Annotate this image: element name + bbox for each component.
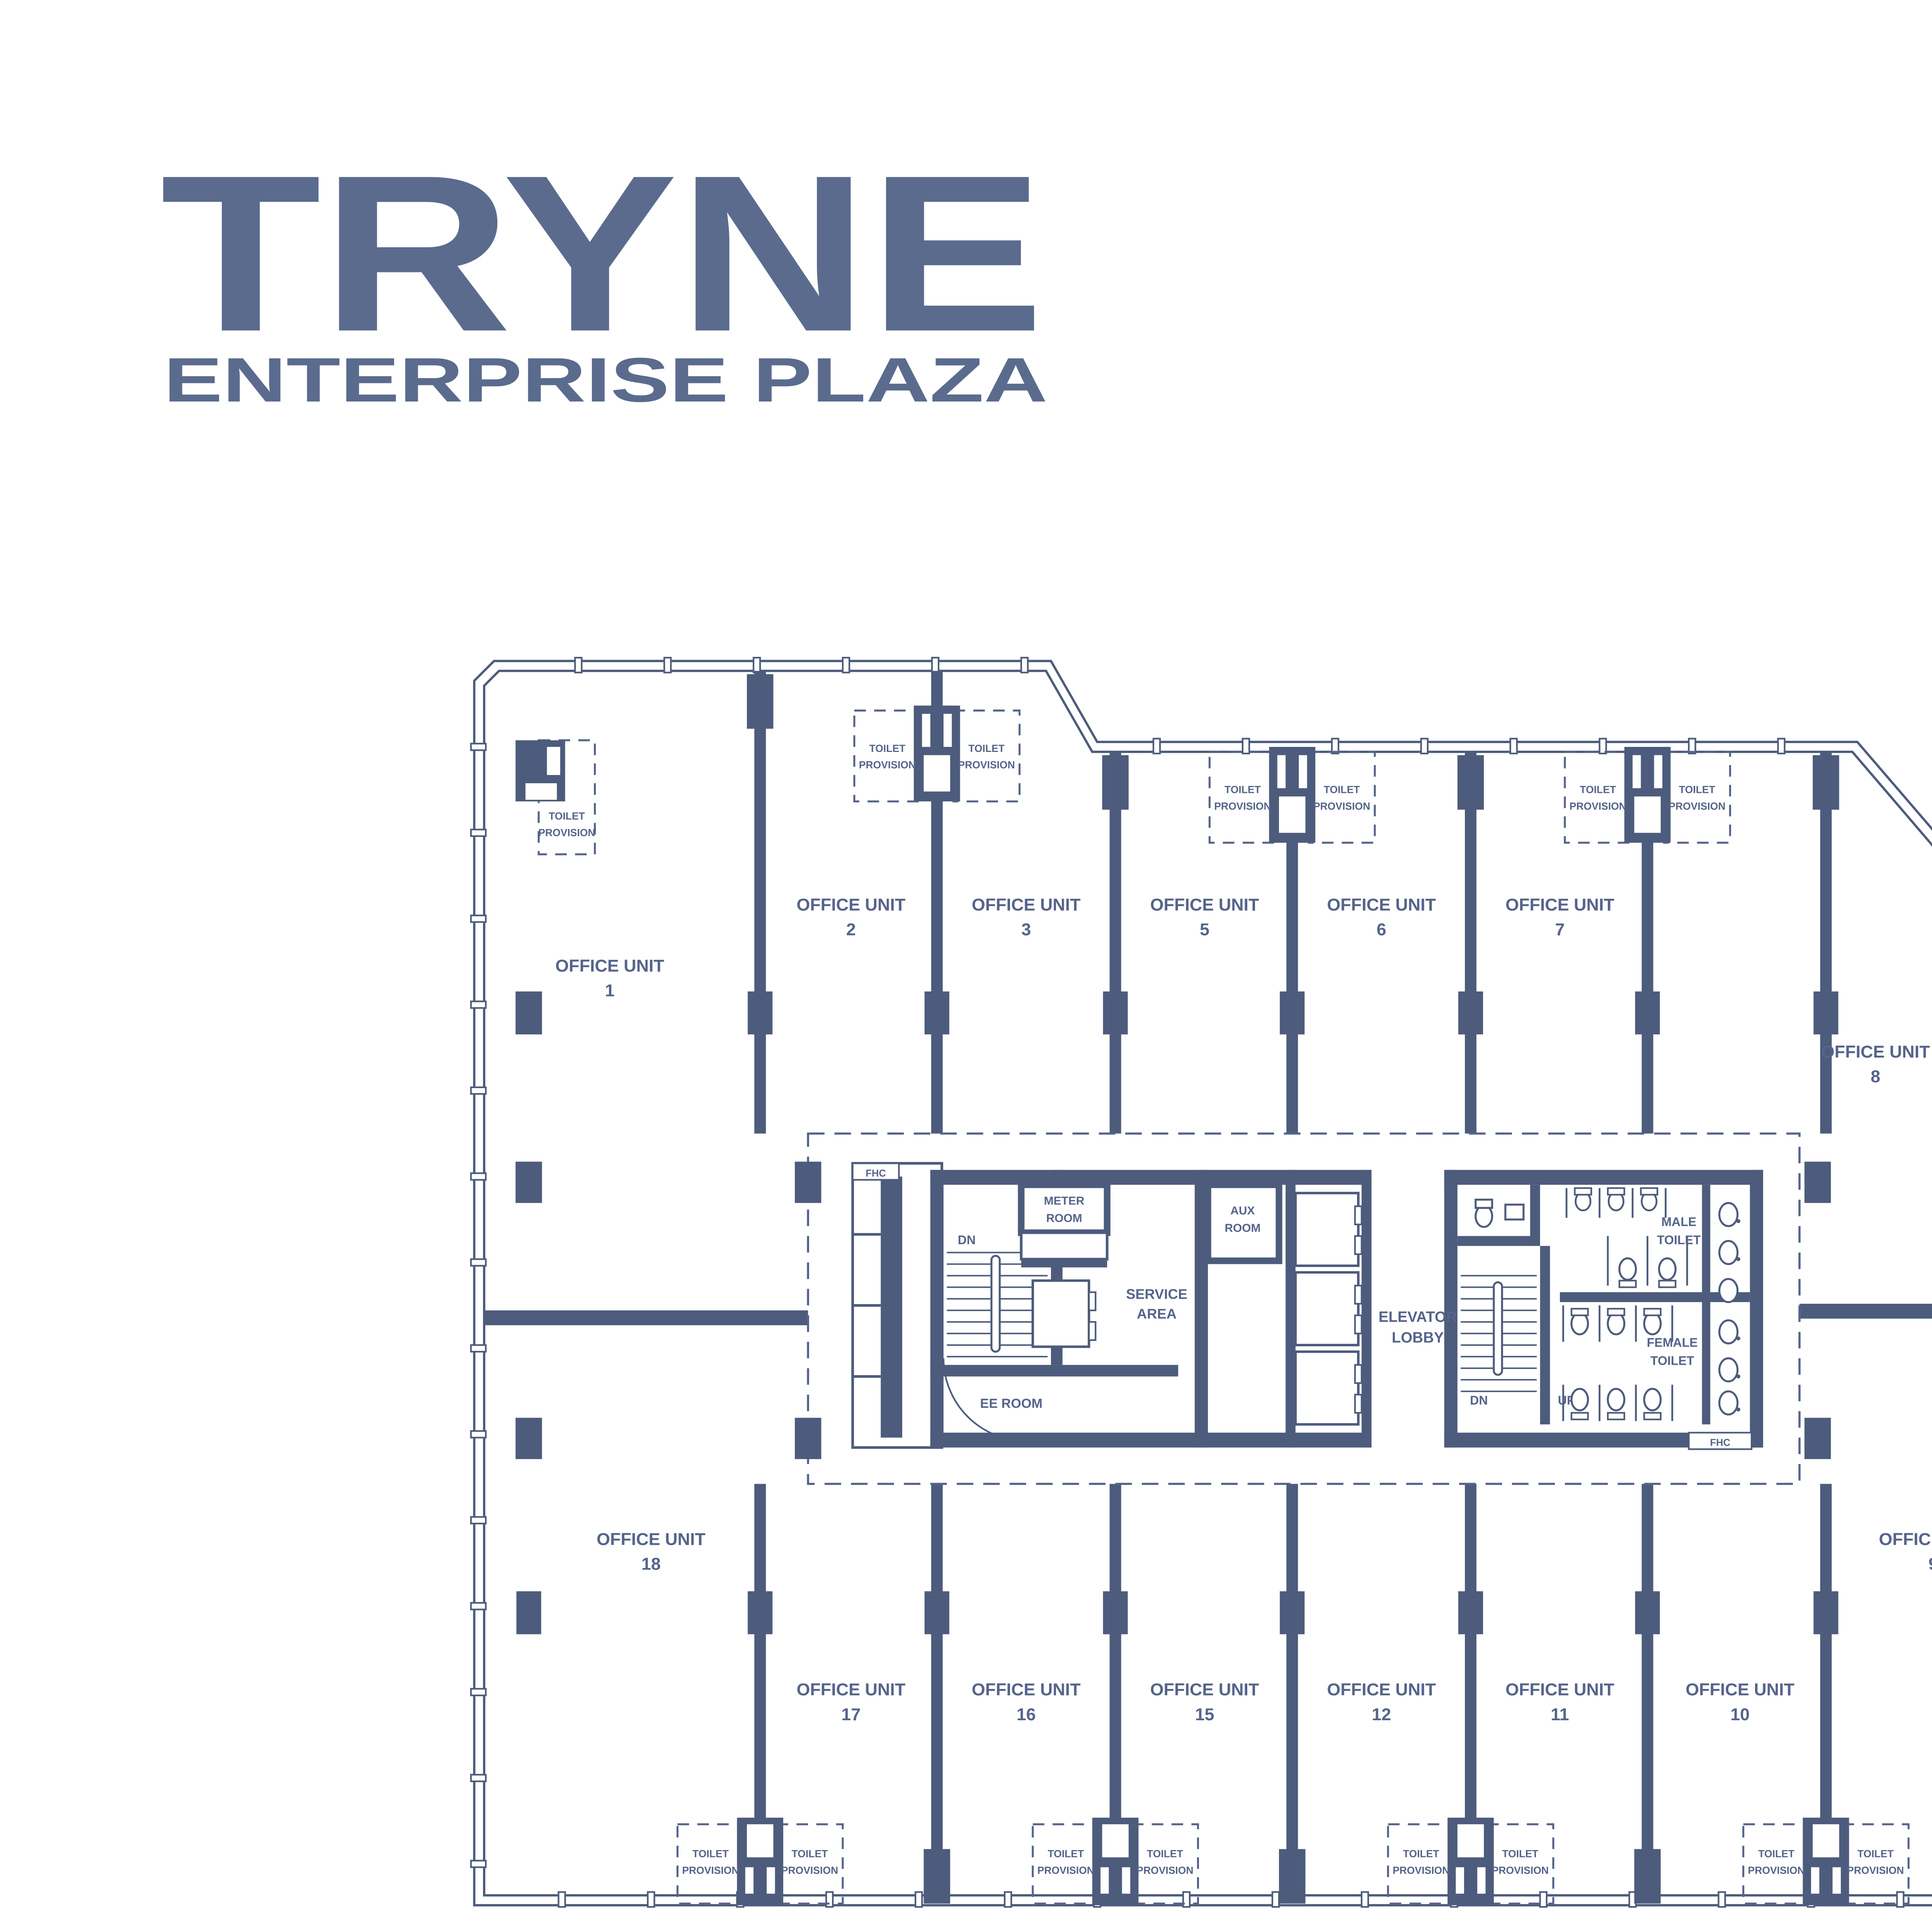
office-unit-name: OFFICE UNIT <box>1327 895 1436 914</box>
cutout <box>526 783 557 800</box>
office-unit-label-3: OFFICE UNIT3 <box>972 895 1081 939</box>
tap <box>1736 1219 1740 1223</box>
column <box>515 1162 542 1203</box>
office-unit-label-16: OFFICE UNIT16 <box>972 1680 1081 1724</box>
toilet-provision-label: PROVISION <box>1748 1865 1805 1876</box>
wall <box>930 1170 944 1447</box>
column <box>1103 992 1128 1034</box>
cutout <box>547 747 560 775</box>
office-unit-label-15: OFFICE UNIT15 <box>1150 1680 1259 1724</box>
toilet-fixture <box>1644 1389 1661 1410</box>
office-unit-label-9: OFFICE UNIT9 <box>1879 1529 1932 1573</box>
cutout <box>924 755 950 791</box>
mullion-tick <box>1510 739 1517 753</box>
urinal-back <box>1608 1188 1624 1195</box>
toilet-tank <box>1608 1309 1624 1315</box>
wall <box>1530 1185 1540 1246</box>
column <box>925 1591 949 1634</box>
office-unit-name: OFFICE UNIT <box>1685 1680 1794 1699</box>
wall <box>1540 1246 1550 1424</box>
toilet-provision-label: PROVISION <box>1393 1865 1449 1876</box>
mullion-tick <box>1243 739 1249 753</box>
mullion-tick <box>1540 1892 1547 1907</box>
column <box>924 1849 950 1903</box>
elevator-door <box>1089 1292 1095 1310</box>
toilet-fixture <box>1571 1389 1588 1410</box>
office-unit-name: OFFICE UNIT <box>1821 1042 1930 1061</box>
vanity-wall <box>1702 1185 1710 1424</box>
toilet-fixture <box>1619 1259 1636 1280</box>
office-unit-number: 12 <box>1372 1704 1391 1724</box>
partition-wall <box>931 1484 943 1895</box>
wall <box>930 1170 1372 1185</box>
toilet-provision-label: PROVISION <box>1214 800 1271 812</box>
urinal-back <box>1641 1188 1658 1195</box>
column <box>795 1418 821 1459</box>
service-elevator <box>1033 1281 1089 1347</box>
mullion-tick <box>471 915 486 922</box>
mullion-tick <box>471 830 486 836</box>
wash-basin <box>1719 1391 1738 1415</box>
wall <box>1750 1170 1763 1447</box>
toilet-tank <box>1571 1413 1588 1419</box>
page: TRYNE ENTERPRISE PLAZA FHCDNUPDNUPFHC TO… <box>0 0 1932 1932</box>
toilet-provision-box <box>1743 1824 1810 1903</box>
office-unit-number: 16 <box>1017 1704 1036 1724</box>
wash-basin <box>1719 1320 1738 1344</box>
office-unit-label-11: OFFICE UNIT11 <box>1505 1680 1614 1724</box>
tap <box>1736 1337 1740 1340</box>
mullion-tick <box>471 1775 486 1781</box>
elevator-door <box>1355 1395 1362 1413</box>
column <box>925 992 949 1034</box>
mullion-tick <box>648 1892 654 1907</box>
toilet-provision-label: PROVISION <box>1570 800 1626 812</box>
office-unit-label-18: OFFICE UNIT18 <box>597 1529 706 1573</box>
office-unit-number: 7 <box>1555 919 1565 939</box>
column <box>1458 755 1484 810</box>
toilet-provision-label: TOILET <box>1147 1848 1183 1860</box>
column <box>1635 1591 1660 1634</box>
office-unit-name: OFFICE UNIT <box>796 895 905 914</box>
toilet-provision-box <box>677 1824 743 1903</box>
column <box>1813 1591 1838 1634</box>
wash-basin <box>1719 1203 1738 1226</box>
partition-wall <box>1642 1484 1653 1895</box>
mullion-tick <box>471 743 486 750</box>
column <box>1280 992 1304 1034</box>
ee-room-text: EE ROOM <box>980 1396 1043 1411</box>
cutout <box>1277 755 1286 788</box>
elevator-door <box>1355 1236 1362 1254</box>
toilet-provision-label: TOILET <box>1857 1848 1894 1860</box>
toilet-provision-label: PROVISION <box>781 1865 838 1876</box>
column <box>748 1591 772 1634</box>
cutout <box>922 714 930 747</box>
stair-rail <box>1494 1282 1502 1375</box>
tap <box>1736 1295 1740 1299</box>
toilet-provision-label: TOILET <box>1580 784 1616 796</box>
riser-duct <box>881 1177 902 1438</box>
toilet-provision-label: TOILET <box>1324 784 1360 796</box>
wall <box>930 1365 1178 1376</box>
cutout <box>1458 1824 1484 1857</box>
column <box>747 674 773 729</box>
toilet-tank <box>1659 1281 1676 1287</box>
column <box>1280 1591 1304 1634</box>
cutout <box>1634 796 1660 833</box>
tap <box>1736 1257 1740 1261</box>
office-unit-number: 1 <box>605 981 615 1000</box>
toilet-provision-box <box>1309 752 1375 843</box>
toilet-provision-box <box>1209 752 1276 843</box>
office-unit-label-10: OFFICE UNIT10 <box>1685 1680 1794 1724</box>
male-toilet-label: MALETOILET <box>1657 1215 1701 1247</box>
mullion-tick <box>558 1892 565 1907</box>
sink <box>1505 1205 1524 1219</box>
cutout <box>1811 1867 1819 1893</box>
mullion-tick <box>915 1892 922 1907</box>
column <box>1635 992 1660 1034</box>
office-unit-label-6: OFFICE UNIT6 <box>1327 895 1436 939</box>
cutout <box>1102 1824 1128 1857</box>
toilet-tank <box>1476 1200 1492 1208</box>
column <box>1813 992 1838 1034</box>
toilet-provision-box <box>1388 1824 1454 1903</box>
office-unit-label-7: OFFICE UNIT7 <box>1505 895 1614 939</box>
column <box>1102 755 1128 810</box>
office-unit-name: OFFICE UNIT <box>555 956 664 976</box>
brand-logo: TRYNE ENTERPRISE PLAZA <box>160 129 1048 415</box>
toilet-provision-label: TOILET <box>1502 1848 1538 1860</box>
toilet-provision-label: PROVISION <box>538 827 595 838</box>
wash-basin <box>1719 1279 1738 1302</box>
aux-room-text: ROOM <box>1225 1222 1260 1235</box>
toilet-provision-box <box>1033 1824 1099 1903</box>
office-unit-number: 5 <box>1200 919 1209 939</box>
mullion-tick <box>471 1431 486 1437</box>
partition-wall <box>1286 1484 1298 1895</box>
mullion-tick <box>471 1689 486 1696</box>
toilet-provision-label: TOILET <box>549 810 585 822</box>
column <box>748 992 772 1034</box>
mullion-tick <box>471 1861 486 1867</box>
office-unit-label-5: OFFICE UNIT5 <box>1150 895 1259 939</box>
elevator-lobby-text: LOBBY <box>1392 1330 1444 1346</box>
cutout <box>1477 1867 1485 1893</box>
toilet-provision-label: TOILET <box>869 743 906 754</box>
fhc-label-west: FHC <box>866 1168 886 1179</box>
office-unit-name: OFFICE UNIT <box>1327 1680 1436 1699</box>
floor-plan: TRYNE ENTERPRISE PLAZA FHCDNUPDNUPFHC TO… <box>0 0 1932 1932</box>
office-unit-number: 15 <box>1195 1704 1214 1724</box>
elevator-car <box>1296 1352 1359 1424</box>
cutout <box>1299 755 1307 788</box>
mullion-tick <box>843 658 849 672</box>
duct <box>1021 1233 1107 1259</box>
cutout <box>1833 1867 1841 1893</box>
mullion-tick <box>471 1517 486 1524</box>
office-unit-label-12: OFFICE UNIT12 <box>1327 1680 1436 1724</box>
toilet-provision-label: TOILET <box>1758 1848 1794 1860</box>
column <box>1634 1849 1660 1903</box>
mullion-tick <box>753 658 760 672</box>
toilet-provision-box <box>1664 752 1730 843</box>
column <box>795 1162 821 1203</box>
toilet-fixture <box>1659 1259 1676 1280</box>
mullion-tick <box>471 1173 486 1180</box>
office-unit-name: OFFICE UNIT <box>1505 1680 1614 1699</box>
meter-room-text: METER <box>1044 1195 1085 1207</box>
office-unit-number: 17 <box>841 1704 861 1724</box>
cutout <box>1100 1867 1109 1893</box>
office-unit-number: 18 <box>641 1554 661 1574</box>
mullion-tick <box>1719 1892 1725 1907</box>
mullion-tick <box>1778 739 1784 753</box>
office-unit-number: 11 <box>1551 1704 1569 1724</box>
toilet-tank <box>1571 1309 1588 1315</box>
elevator-door <box>1355 1315 1362 1333</box>
office-unit-number: 2 <box>846 919 856 939</box>
stair-rail <box>992 1256 1000 1352</box>
office-unit-name: OFFICE UNIT <box>1879 1529 1932 1549</box>
elevator-door <box>1355 1365 1362 1383</box>
office-unit-label-2: OFFICE UNIT2 <box>796 895 905 939</box>
mullion-tick <box>471 1603 486 1609</box>
toilet-tank <box>1644 1413 1661 1419</box>
mullion-tick <box>471 1087 486 1094</box>
toilet-provision-label: PROVISION <box>1037 1865 1094 1876</box>
mullion-tick <box>1272 1892 1279 1907</box>
toilet-tank <box>1619 1281 1636 1287</box>
wall <box>1362 1170 1372 1447</box>
mullion-tick <box>932 658 939 672</box>
fhc-label-east: FHC <box>1710 1437 1730 1448</box>
toilet-fixture <box>1608 1389 1624 1410</box>
elevator-car <box>1296 1272 1359 1345</box>
brand-subtitle: ENTERPRISE PLAZA <box>163 345 1048 415</box>
urinal-back <box>1575 1188 1591 1195</box>
toilet-provision-label: TOILET <box>792 1848 828 1860</box>
ee-room-label: EE ROOM <box>980 1396 1043 1411</box>
toilet-provision-label: PROVISION <box>1847 1865 1904 1876</box>
mullion-tick <box>471 1002 486 1008</box>
partition-wall <box>754 671 766 1133</box>
service-area-text: AREA <box>1137 1306 1177 1322</box>
stair2-dn: DN <box>1470 1393 1488 1407</box>
office-unit-label-8: OFFICE UNIT8 <box>1821 1042 1930 1086</box>
column <box>1103 1591 1128 1634</box>
column <box>1458 1591 1483 1634</box>
toilet-provision-label: PROVISION <box>1668 800 1725 812</box>
column <box>1804 1162 1831 1203</box>
cutout <box>1654 755 1662 788</box>
female-toilet-label: FEMALETOILET <box>1647 1335 1698 1367</box>
toilet-provisions: TOILETPROVISIONTOILETPROVISIONTOILETPROV… <box>515 706 1908 1905</box>
toilet-provision-label: TOILET <box>1048 1848 1084 1860</box>
mullion-tick <box>575 658 582 672</box>
service-area-label: SERVICEAREA <box>1126 1286 1187 1321</box>
elevator-door <box>1355 1286 1362 1304</box>
column <box>1458 992 1483 1034</box>
cutout <box>1279 796 1305 833</box>
mullion-tick <box>1897 1892 1903 1907</box>
office-unit-label-1: OFFICE UNIT1 <box>555 956 664 1000</box>
elevator-lobby-text: ELEVATOR <box>1379 1309 1457 1325</box>
brand-name: TRYNE <box>160 129 1044 378</box>
male-toilet-text: MALE <box>1661 1215 1696 1229</box>
separation-wall-east <box>1799 1304 1932 1318</box>
office-unit-number: 3 <box>1021 919 1031 939</box>
meter-room-text: ROOM <box>1046 1212 1082 1225</box>
column <box>515 992 542 1034</box>
column <box>516 1591 541 1634</box>
wall <box>1458 1236 1537 1246</box>
wash-basin <box>1719 1241 1738 1264</box>
toilet-provision-label: TOILET <box>968 743 1005 754</box>
mullion-tick <box>1153 739 1160 753</box>
toilet-tank <box>1644 1309 1661 1315</box>
cutout <box>944 714 952 747</box>
office-unit-name: OFFICE UNIT <box>972 895 1081 914</box>
office-unit-number: 10 <box>1730 1704 1750 1724</box>
mullion-tick <box>664 658 671 672</box>
toilet-provision-label: PROVISION <box>1492 1865 1549 1876</box>
cutout <box>1122 1867 1130 1893</box>
elevator-car <box>1296 1193 1359 1266</box>
office-unit-label-17: OFFICE UNIT17 <box>796 1680 905 1724</box>
column <box>1804 1418 1831 1459</box>
toilet-provision-box <box>954 711 1020 801</box>
office-unit-name: OFFICE UNIT <box>597 1529 706 1549</box>
mullion-tick <box>1362 1892 1368 1907</box>
office-unit-number: 6 <box>1377 919 1386 939</box>
column <box>515 1418 542 1459</box>
column <box>1279 1849 1305 1903</box>
male-toilet-text: TOILET <box>1657 1233 1701 1247</box>
cutout <box>1456 1867 1464 1893</box>
mullion-tick <box>1021 658 1028 672</box>
toilet-provision-label: PROVISION <box>859 759 916 771</box>
mullion-tick <box>1005 1892 1011 1907</box>
toilet-provision-box <box>854 711 920 801</box>
cutout <box>745 1867 753 1893</box>
toilet-provision-label: TOILET <box>692 1848 729 1860</box>
cutout <box>1813 1824 1839 1857</box>
elevator-door <box>1355 1206 1362 1225</box>
toilet-provision-label: TOILET <box>1225 784 1261 796</box>
mullion-tick <box>471 1259 486 1266</box>
column <box>1813 755 1839 810</box>
stair1-dn: DN <box>958 1233 976 1247</box>
toilet-provision-label: PROVISION <box>682 1865 739 1876</box>
tap <box>1736 1408 1740 1412</box>
office-unit-name: OFFICE UNIT <box>1505 895 1614 914</box>
office-unit-number: 8 <box>1871 1066 1880 1086</box>
wall <box>1286 1170 1296 1447</box>
cutout <box>767 1867 775 1893</box>
toilet-provision-label: TOILET <box>1679 784 1715 796</box>
mullion-tick <box>471 1345 486 1352</box>
tap <box>1736 1374 1740 1378</box>
mullion-tick <box>1421 739 1428 753</box>
female-toilet-text: FEMALE <box>1647 1335 1698 1349</box>
wash-basin <box>1719 1358 1738 1381</box>
office-unit-name: OFFICE UNIT <box>1150 895 1259 914</box>
toilet-tank <box>1608 1413 1624 1419</box>
office-unit-number: 9 <box>1929 1554 1932 1574</box>
office-unit-name: OFFICE UNIT <box>796 1680 905 1699</box>
mullion-tick <box>1183 1892 1190 1907</box>
office-unit-name: OFFICE UNIT <box>972 1680 1081 1699</box>
service-area-text: SERVICE <box>1126 1286 1187 1302</box>
toilet-provision-label: PROVISION <box>1313 800 1370 812</box>
office-unit-name: OFFICE UNIT <box>1150 1680 1259 1699</box>
female-toilet-text: TOILET <box>1650 1354 1694 1367</box>
wall <box>1444 1170 1763 1185</box>
toilet-provision-label: PROVISION <box>1136 1865 1193 1876</box>
separation-wall-west <box>484 1310 808 1325</box>
toilet-provision-label: TOILET <box>1403 1848 1439 1860</box>
toilet-provision-box <box>1565 752 1631 843</box>
mullion-tick <box>826 1892 833 1907</box>
aux-room-text: AUX <box>1230 1204 1255 1217</box>
cutout <box>1633 755 1641 788</box>
cutout <box>747 1824 773 1857</box>
elevator-door <box>1089 1322 1095 1340</box>
meter-room <box>1021 1185 1107 1233</box>
toilet-provision-label: PROVISION <box>958 759 1015 771</box>
